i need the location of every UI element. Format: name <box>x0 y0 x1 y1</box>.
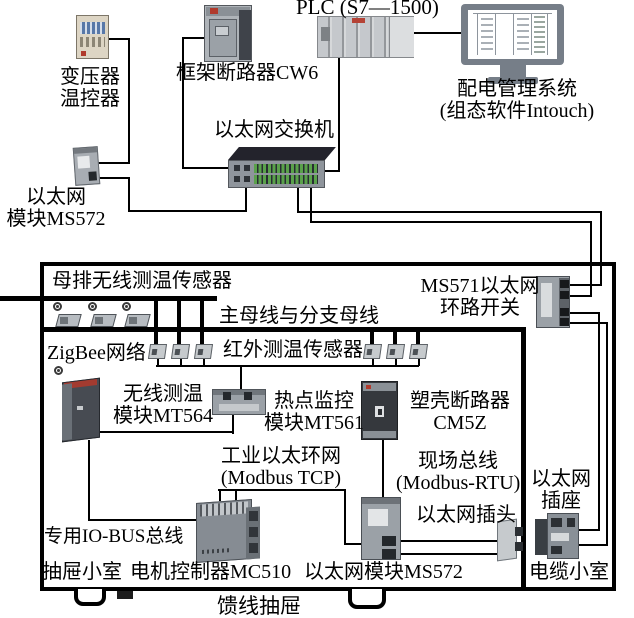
wireless-antenna-icon <box>54 366 63 375</box>
switch-port <box>244 165 250 171</box>
screen-schematic-text <box>517 18 529 52</box>
busbar-sensor-label: 母排无线测温传感器 <box>52 270 232 292</box>
wire <box>396 553 499 555</box>
transformer-controller-device <box>76 15 109 59</box>
socket-slot <box>567 518 575 527</box>
busbar-line <box>240 365 242 392</box>
module-port <box>560 318 569 326</box>
switch-port <box>234 165 240 171</box>
module-port <box>223 392 231 400</box>
wire <box>218 489 346 491</box>
controller-keys <box>80 37 105 47</box>
module-label <box>77 156 90 169</box>
sensor-face <box>129 317 137 324</box>
breaker-window <box>215 26 229 36</box>
network-topology-diagram: PLC (S7—1500) 变压器 温控器 框架断路器CW6 配电管理系统 (组… <box>0 0 634 618</box>
plc-label: PLC (S7—1500) <box>296 0 439 18</box>
busbar-line <box>154 297 158 346</box>
controller-fin-slot <box>249 527 258 537</box>
module-top-cap <box>362 498 400 504</box>
busbar-line <box>297 186 299 213</box>
switch-top-face <box>228 147 336 160</box>
transformer-controller-label: 变压器 温控器 <box>50 66 130 110</box>
ir-lens <box>175 349 181 355</box>
ethernet-plug-label: 以太网插头 <box>416 504 516 526</box>
breaker-bottom-cap <box>363 431 396 438</box>
controller-led <box>81 51 86 56</box>
wire <box>413 32 463 34</box>
wire <box>310 221 592 223</box>
switch-port <box>244 176 250 182</box>
busbar-line <box>182 37 184 169</box>
ethernet-switch-label: 以太网交换机 <box>214 119 334 141</box>
wire <box>568 295 592 297</box>
wireless-antenna-icon <box>122 302 131 311</box>
mt564-label: 无线测温 模块MT564 <box>103 383 223 427</box>
wire <box>577 529 600 531</box>
busbar-wireless-sensor <box>53 302 83 330</box>
ethernet-module-ms572-device <box>361 497 401 560</box>
module-port <box>560 280 569 288</box>
ethernet-socket-label: 以太网 插座 <box>529 468 593 512</box>
feeder-drawer-label: 馈线抽屉 <box>217 595 301 617</box>
drawer-handle <box>348 589 386 609</box>
sensor-face <box>60 317 68 324</box>
cm5z-breaker-device <box>361 381 398 440</box>
wire <box>568 322 608 324</box>
busbar-line <box>0 296 217 301</box>
switch-green-ports <box>254 164 318 173</box>
ethernet-module-ms572-label: 以太网模块MS572 <box>304 561 463 583</box>
wire <box>568 284 602 286</box>
wire <box>88 519 198 521</box>
socket-slot <box>551 518 562 527</box>
module-port <box>382 536 396 546</box>
industrial-ring-label: 工业以太环网 (Modbus TCP) <box>205 445 357 489</box>
controller-screen <box>80 22 105 34</box>
screen-schematic-line <box>477 13 478 55</box>
screen-schematic-text <box>481 18 493 52</box>
fieldbus-label: 现场总线 (Modbus-RTU) <box>396 450 520 494</box>
busbar-line <box>382 437 384 500</box>
screen-schematic-line <box>531 13 532 55</box>
wireless-antenna-icon <box>88 302 97 311</box>
wire <box>108 38 130 40</box>
ethernet-module-left-label: 以太网 模块MS572 <box>3 186 109 230</box>
breaker-side-column <box>239 10 251 60</box>
plc-right-module <box>389 17 414 57</box>
busbar-line <box>606 322 608 546</box>
infrared-sensor <box>148 344 167 359</box>
wire <box>89 431 234 433</box>
screen-schematic-line <box>547 13 548 55</box>
mc510-label: 电机控制器MC510 <box>130 561 291 583</box>
drawer-cell-label: 抽屉小室 <box>42 561 122 583</box>
module-port <box>88 171 97 181</box>
ir-lens <box>367 349 373 355</box>
breaker-red-tag <box>210 8 218 14</box>
ethernet-switch-device <box>226 145 328 190</box>
busbar-wireless-sensor <box>88 302 118 330</box>
infrared-sensor <box>194 344 213 359</box>
frame-breaker-cw6-device <box>204 5 252 62</box>
busbar-line <box>200 297 204 346</box>
module-port <box>560 308 569 316</box>
infrared-sensor <box>171 344 190 359</box>
plug-pin <box>515 527 523 536</box>
zigbee-label: ZigBee网络 <box>47 342 146 364</box>
infrared-sensor-label: 红外测温传感器 <box>223 339 363 361</box>
controller-fin-slot <box>249 543 258 553</box>
infrared-sensor <box>409 344 428 359</box>
module-dot <box>77 406 83 410</box>
screen-schematic-text <box>534 16 545 56</box>
screen-schematic-line <box>513 13 514 55</box>
breaker-panel <box>209 19 237 57</box>
breaker-toggle <box>378 409 382 415</box>
busbar-wireless-sensor <box>122 302 152 330</box>
plc-rack-device <box>317 16 414 58</box>
management-system-label: 配电管理系统 (组态软件Intouch) <box>435 78 599 122</box>
busbar-line <box>590 221 592 297</box>
scada-monitor <box>461 4 564 84</box>
cable-cell-label: 电缆小室 <box>529 561 609 583</box>
wireless-antenna-icon <box>53 302 62 311</box>
wire <box>182 167 230 169</box>
breaker-red-mark <box>366 385 371 389</box>
screen-schematic-line <box>495 13 496 55</box>
wire <box>577 544 608 546</box>
ethernet-socket-device <box>535 513 579 559</box>
busbar-line <box>344 489 346 545</box>
controller-fin-slot <box>249 511 258 521</box>
drawer-handle <box>74 589 106 606</box>
ethernet-module-ms572-left-device <box>73 146 101 186</box>
wire <box>568 312 600 314</box>
ir-lens <box>413 349 419 355</box>
socket-slot <box>551 546 562 554</box>
cm5z-label: 塑壳断路器 CM5Z <box>398 390 522 434</box>
busbar-line <box>598 312 600 531</box>
io-bus-label: 专用IO-BUS总线 <box>44 526 183 548</box>
sensor-face <box>95 317 103 324</box>
switch-green-ports <box>254 175 318 184</box>
mt564-wireless-module-device <box>52 366 104 442</box>
module-top-cap <box>74 147 97 154</box>
ms571-label: MS571以太网 环路开关 <box>405 275 555 319</box>
ir-lens <box>152 349 158 355</box>
module-label <box>219 404 259 411</box>
switch-port <box>234 176 240 182</box>
ir-lens <box>390 349 396 355</box>
module-port <box>560 291 569 299</box>
busbar-line <box>310 186 312 223</box>
mc510-motor-controller-device <box>194 497 260 563</box>
plug-pin <box>515 542 523 551</box>
busbar-line <box>177 297 181 346</box>
ir-lens <box>198 349 204 355</box>
module-label <box>368 509 388 526</box>
mt561-label: 热点监控 模块MT561 <box>262 390 366 434</box>
socket-left-block <box>535 519 547 555</box>
busbar-line <box>88 440 90 521</box>
main-busbar-label: 主母线与分支母线 <box>219 305 379 327</box>
infrared-sensor <box>363 344 382 359</box>
busbar-line <box>338 56 340 172</box>
busbar-line <box>128 177 130 212</box>
wire <box>128 210 247 212</box>
wire <box>96 162 130 164</box>
plc-cpu-display <box>321 27 330 41</box>
wire <box>297 211 602 213</box>
wire <box>156 365 419 367</box>
module-side-face <box>62 383 72 440</box>
wire <box>396 540 499 542</box>
module-port <box>382 549 396 559</box>
busbar-line <box>600 211 602 286</box>
drawer-tab <box>117 591 133 599</box>
module-port <box>244 392 252 400</box>
socket-notch <box>551 533 569 541</box>
infrared-sensor <box>386 344 405 359</box>
frame-breaker-label: 框架断路器CW6 <box>176 62 318 84</box>
